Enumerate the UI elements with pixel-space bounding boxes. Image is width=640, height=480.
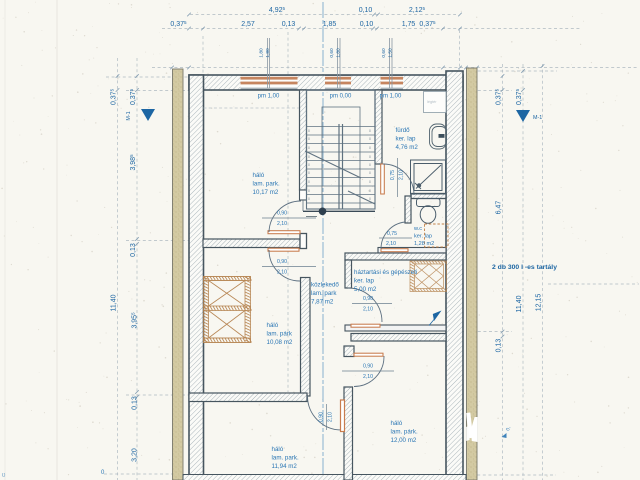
- svg-text:2,10: 2,10: [277, 221, 287, 227]
- svg-text:közlekedő: közlekedő: [311, 282, 339, 289]
- svg-text:5,00 m2: 5,00 m2: [354, 286, 377, 293]
- svg-text:8: 8: [308, 171, 310, 175]
- svg-text:8: 8: [308, 137, 310, 141]
- svg-text:0,13: 0,13: [282, 21, 296, 28]
- svg-text:8: 8: [308, 197, 310, 201]
- svg-text:1,75: 1,75: [402, 21, 416, 28]
- svg-text:8: 8: [308, 155, 310, 159]
- svg-text:2,10: 2,10: [277, 270, 287, 276]
- svg-text:12,00 m2: 12,00 m2: [391, 437, 417, 444]
- svg-text:pm 1,00: pm 1,00: [380, 94, 402, 100]
- svg-text:fürdő: fürdő: [396, 127, 411, 134]
- svg-text:8: 8: [369, 129, 371, 133]
- svg-text:w.c: w.c: [413, 226, 422, 232]
- svg-text:8: 8: [369, 137, 371, 141]
- svg-text:2,10: 2,10: [328, 412, 334, 422]
- svg-text:11,40: 11,40: [111, 294, 118, 311]
- svg-text:6,47: 6,47: [496, 201, 503, 215]
- svg-text:ker. lap: ker. lap: [414, 234, 432, 240]
- svg-text:M-1: M-1: [533, 115, 542, 121]
- svg-text:2,10: 2,10: [363, 307, 373, 313]
- svg-text:8: 8: [308, 163, 310, 167]
- svg-text:0,13: 0,13: [130, 243, 137, 257]
- svg-text:1,80: 1,80: [265, 48, 271, 58]
- svg-text:0,90: 0,90: [319, 412, 325, 422]
- svg-text:háló: háló: [267, 322, 279, 329]
- svg-text:2,10: 2,10: [386, 241, 396, 247]
- svg-text:2,10: 2,10: [399, 170, 405, 180]
- svg-text:pm 0,00: pm 0,00: [330, 94, 352, 100]
- svg-text:11,40: 11,40: [516, 295, 523, 312]
- svg-text:0,13: 0,13: [132, 396, 139, 410]
- svg-text:0,75: 0,75: [390, 170, 396, 180]
- svg-text:8: 8: [369, 171, 371, 175]
- svg-text:12,15: 12,15: [536, 294, 543, 312]
- svg-text:8: 8: [369, 180, 371, 184]
- svg-text:8: 8: [369, 155, 371, 159]
- svg-text:légtér: légtér: [427, 100, 437, 104]
- svg-text:lam. park.: lam. park.: [253, 181, 280, 188]
- svg-text:háztartási és gépészeti: háztartási és gépészeti: [354, 269, 417, 276]
- svg-text:0,10: 0,10: [360, 21, 374, 28]
- svg-text:8: 8: [369, 189, 371, 193]
- svg-text:lam. párk: lam. párk: [267, 331, 293, 338]
- svg-text:háló: háló: [253, 172, 265, 179]
- svg-text:2 db 300 l -es tartály: 2 db 300 l -es tartály: [492, 264, 557, 271]
- svg-text:pm 1,00: pm 1,00: [258, 94, 280, 100]
- svg-text:0,90: 0,90: [363, 296, 373, 302]
- svg-text:11,94 m2: 11,94 m2: [272, 463, 298, 470]
- svg-text:0,10: 0,10: [359, 7, 373, 14]
- svg-text:8: 8: [369, 163, 371, 167]
- svg-text:lam. park.: lam. park.: [272, 455, 299, 462]
- svg-text:8: 8: [308, 189, 310, 193]
- svg-text:2,57: 2,57: [241, 21, 255, 28]
- svg-text:0,75: 0,75: [387, 231, 397, 237]
- svg-text:1,28 m2: 1,28 m2: [414, 241, 434, 247]
- svg-text:4,76 m2: 4,76 m2: [396, 144, 419, 151]
- svg-text:0,60: 0,60: [381, 48, 387, 58]
- svg-text:1,85: 1,85: [323, 21, 337, 28]
- svg-text:háló: háló: [391, 420, 403, 427]
- svg-text:3,20: 3,20: [132, 448, 139, 462]
- svg-text:2,10: 2,10: [363, 374, 373, 380]
- svg-text:lam. párk.: lam. párk.: [391, 429, 418, 436]
- svg-text:8: 8: [308, 146, 310, 150]
- svg-text:0,60: 0,60: [329, 48, 335, 58]
- svg-text:ker. lap: ker. lap: [396, 136, 417, 143]
- svg-text:8: 8: [369, 146, 371, 150]
- svg-text:1,50: 1,50: [388, 48, 394, 58]
- svg-text:ker. lap: ker. lap: [354, 278, 375, 285]
- svg-text:1,80: 1,80: [336, 48, 342, 58]
- svg-text:8: 8: [369, 197, 371, 201]
- svg-text:8: 8: [308, 180, 310, 184]
- svg-text:1,80: 1,80: [259, 48, 265, 58]
- svg-text:0,90: 0,90: [363, 364, 373, 370]
- svg-text:háló: háló: [272, 446, 284, 453]
- svg-text:M-1: M-1: [126, 111, 132, 120]
- svg-text:7,87 m2: 7,87 m2: [311, 299, 334, 306]
- svg-text:10,17 m2: 10,17 m2: [253, 189, 279, 196]
- svg-text:lam. park: lam. park: [311, 290, 337, 297]
- svg-text:0,90: 0,90: [277, 259, 287, 265]
- svg-text:10,08 m2: 10,08 m2: [267, 339, 293, 346]
- svg-text:0,13: 0,13: [496, 339, 503, 353]
- svg-text:8: 8: [308, 129, 310, 133]
- svg-text:0,90: 0,90: [277, 211, 287, 217]
